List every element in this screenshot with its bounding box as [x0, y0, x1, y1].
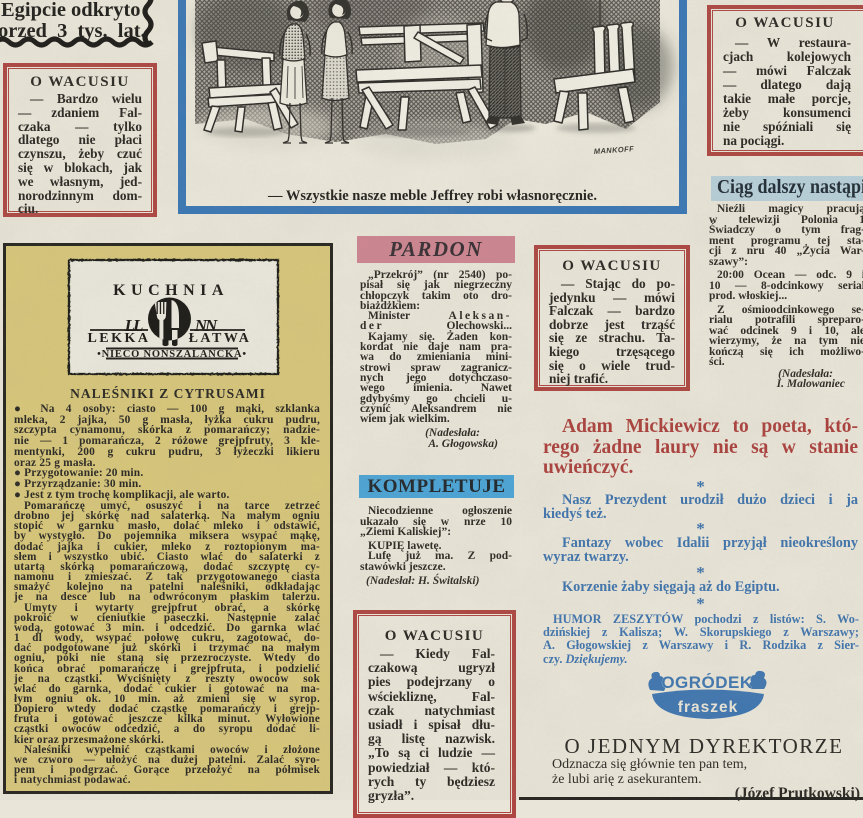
svg-text:fraszek: fraszek	[678, 699, 738, 716]
svg-text:MANKOFF: MANKOFF	[594, 144, 635, 156]
svg-text:•NIECO NONSZALANCKA•: •NIECO NONSZALANCKA•	[97, 349, 247, 360]
svg-text:LEKKA: LEKKA	[87, 331, 150, 346]
svg-text:OGRÓDEK: OGRÓDEK	[661, 673, 753, 692]
svg-text:KUCHNIA: KUCHNIA	[113, 282, 229, 299]
svg-text:ŁATWA: ŁATWA	[189, 331, 252, 346]
